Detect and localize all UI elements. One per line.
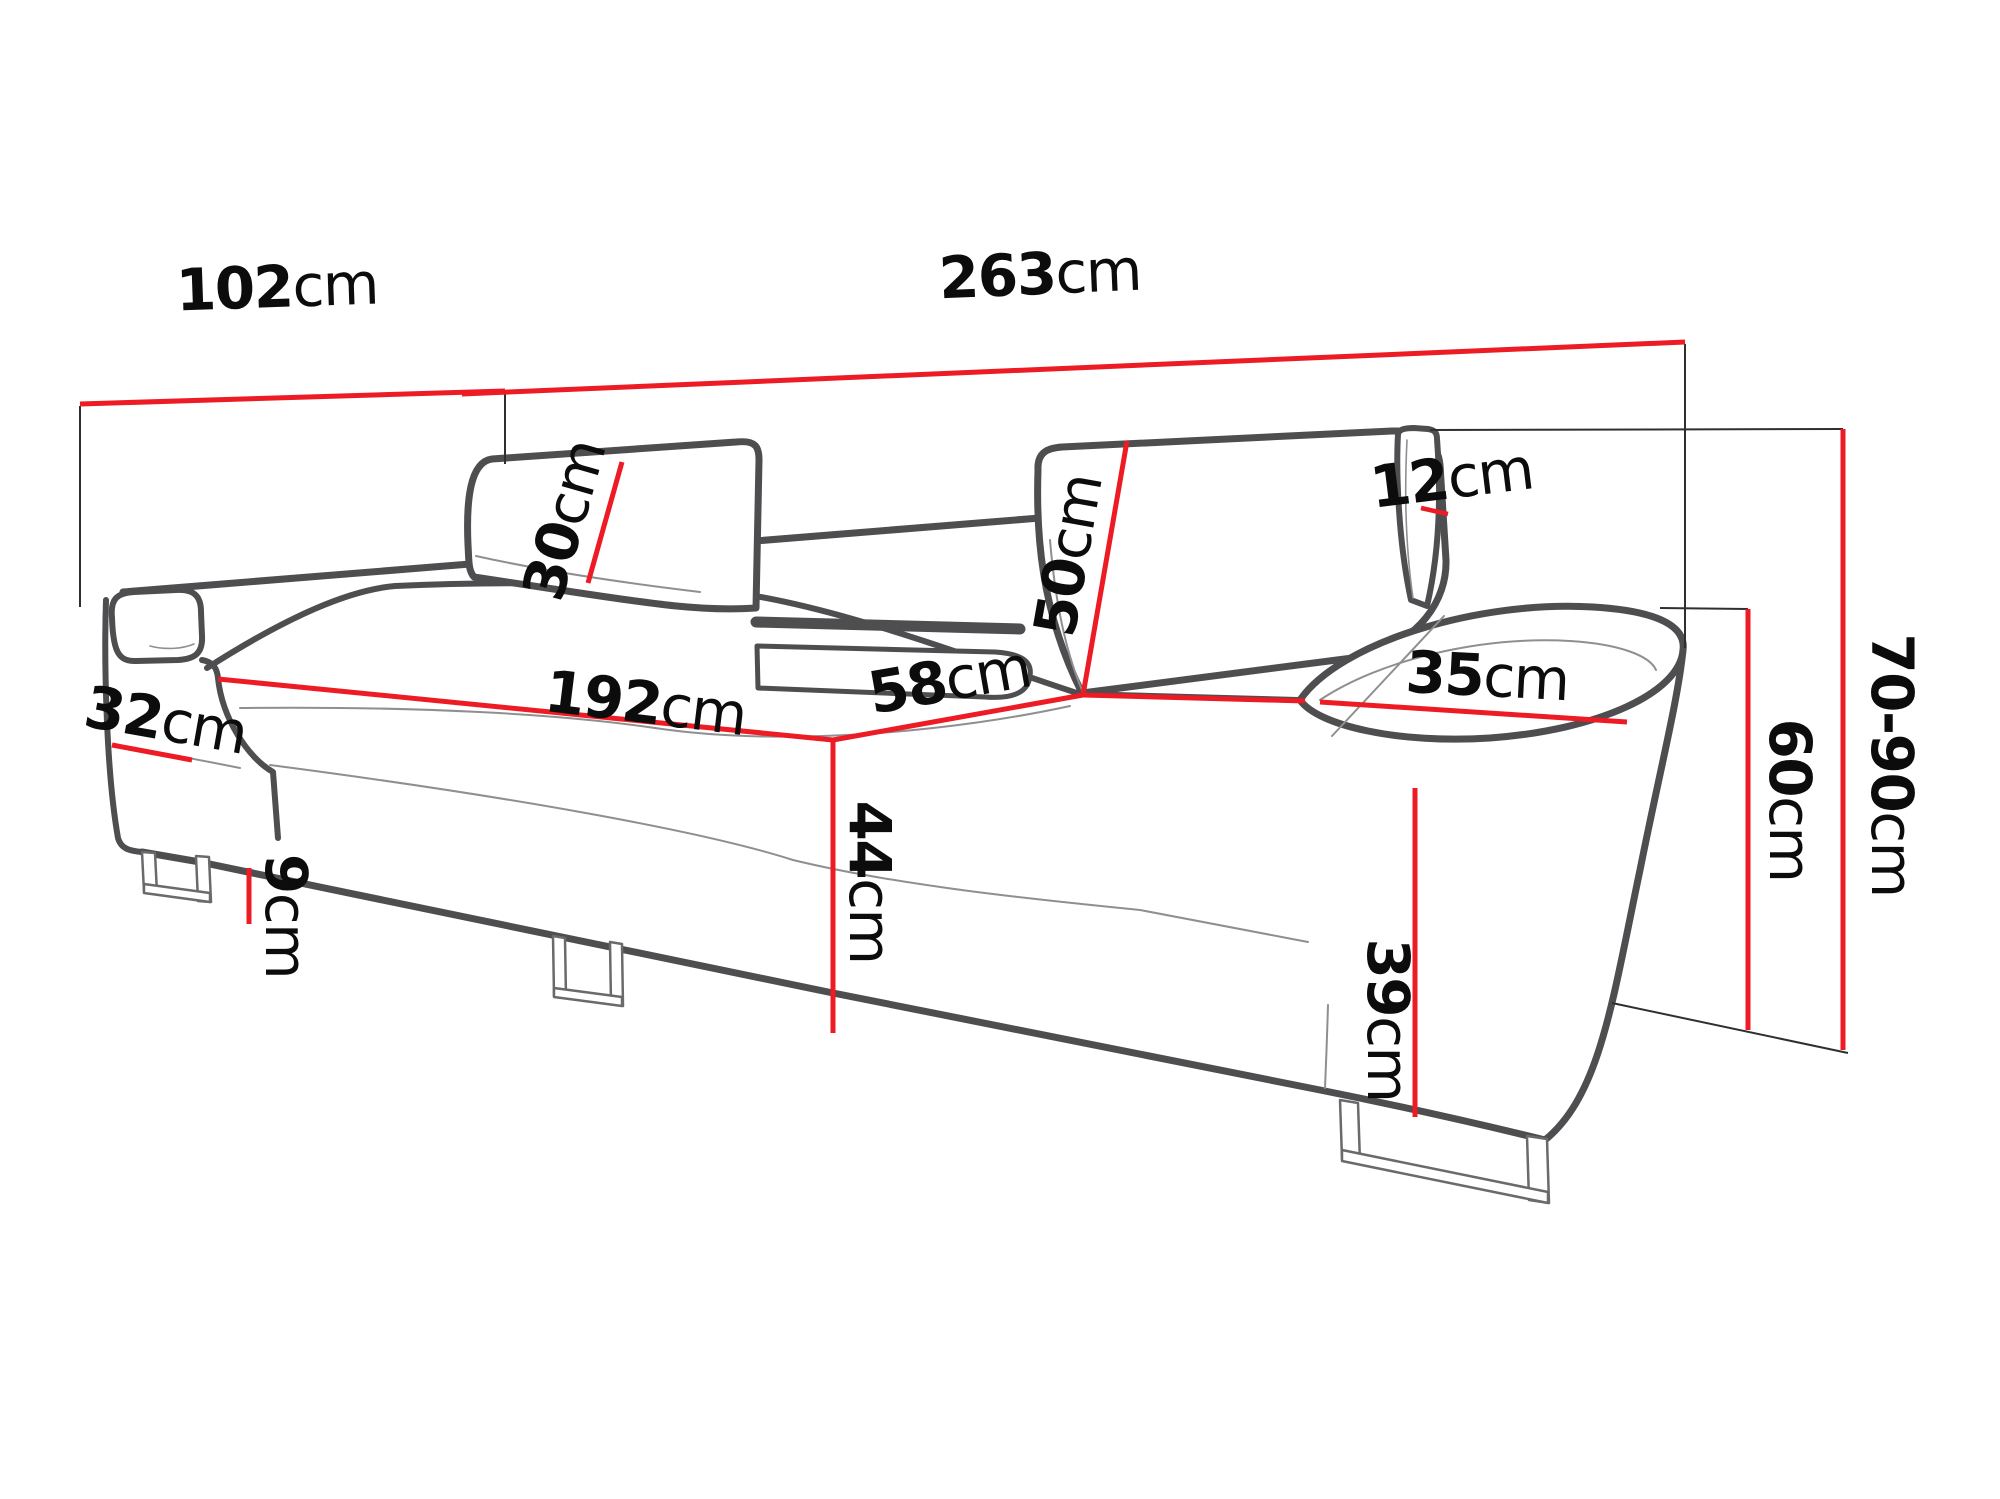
dim-label-39cm: 39cm bbox=[1354, 938, 1422, 1101]
seat-front-edge-seam bbox=[270, 765, 1308, 942]
dim-line-58cm-extension bbox=[1083, 695, 1305, 701]
dim-label-102cm: 102cm bbox=[175, 250, 379, 325]
helper-floor-slant bbox=[1612, 1003, 1848, 1053]
dim-line-263cm bbox=[462, 342, 1685, 394]
left-armrest-pillow bbox=[112, 590, 202, 661]
dim-label-35cm: 35cm bbox=[1404, 638, 1570, 714]
dim-line-102cm bbox=[80, 391, 505, 404]
dim-label-192cm: 192cm bbox=[541, 657, 750, 749]
dim-label-60cm: 60cm bbox=[1756, 718, 1824, 881]
dim-label-32cm: 32cm bbox=[79, 673, 251, 768]
right-leg-bottom-bar bbox=[1342, 1150, 1548, 1203]
front-panel-seam bbox=[1325, 1005, 1328, 1088]
dimension-lines bbox=[80, 342, 1843, 1117]
dim-label-58cm: 58cm bbox=[863, 633, 1035, 728]
center-headrest-bar bbox=[756, 622, 1020, 629]
middle-leg bbox=[553, 936, 623, 1006]
dim-label-9cm: 9cm bbox=[252, 854, 320, 978]
dim-label-44cm: 44cm bbox=[836, 800, 904, 963]
sofa-dimension-diagram: 102cm 263cm 30cm 50cm 12cm 192cm 58cm 35… bbox=[0, 0, 2000, 1499]
dim-label-263cm: 263cm bbox=[937, 236, 1142, 313]
helper-top-height bbox=[1430, 429, 1843, 430]
dim-label-70-90cm: 70-90cm bbox=[1858, 633, 1926, 896]
sofa-dimension-diagram-page: 102cm 263cm 30cm 50cm 12cm 192cm 58cm 35… bbox=[0, 0, 2000, 1499]
helper-armrest-height bbox=[1660, 608, 1748, 609]
